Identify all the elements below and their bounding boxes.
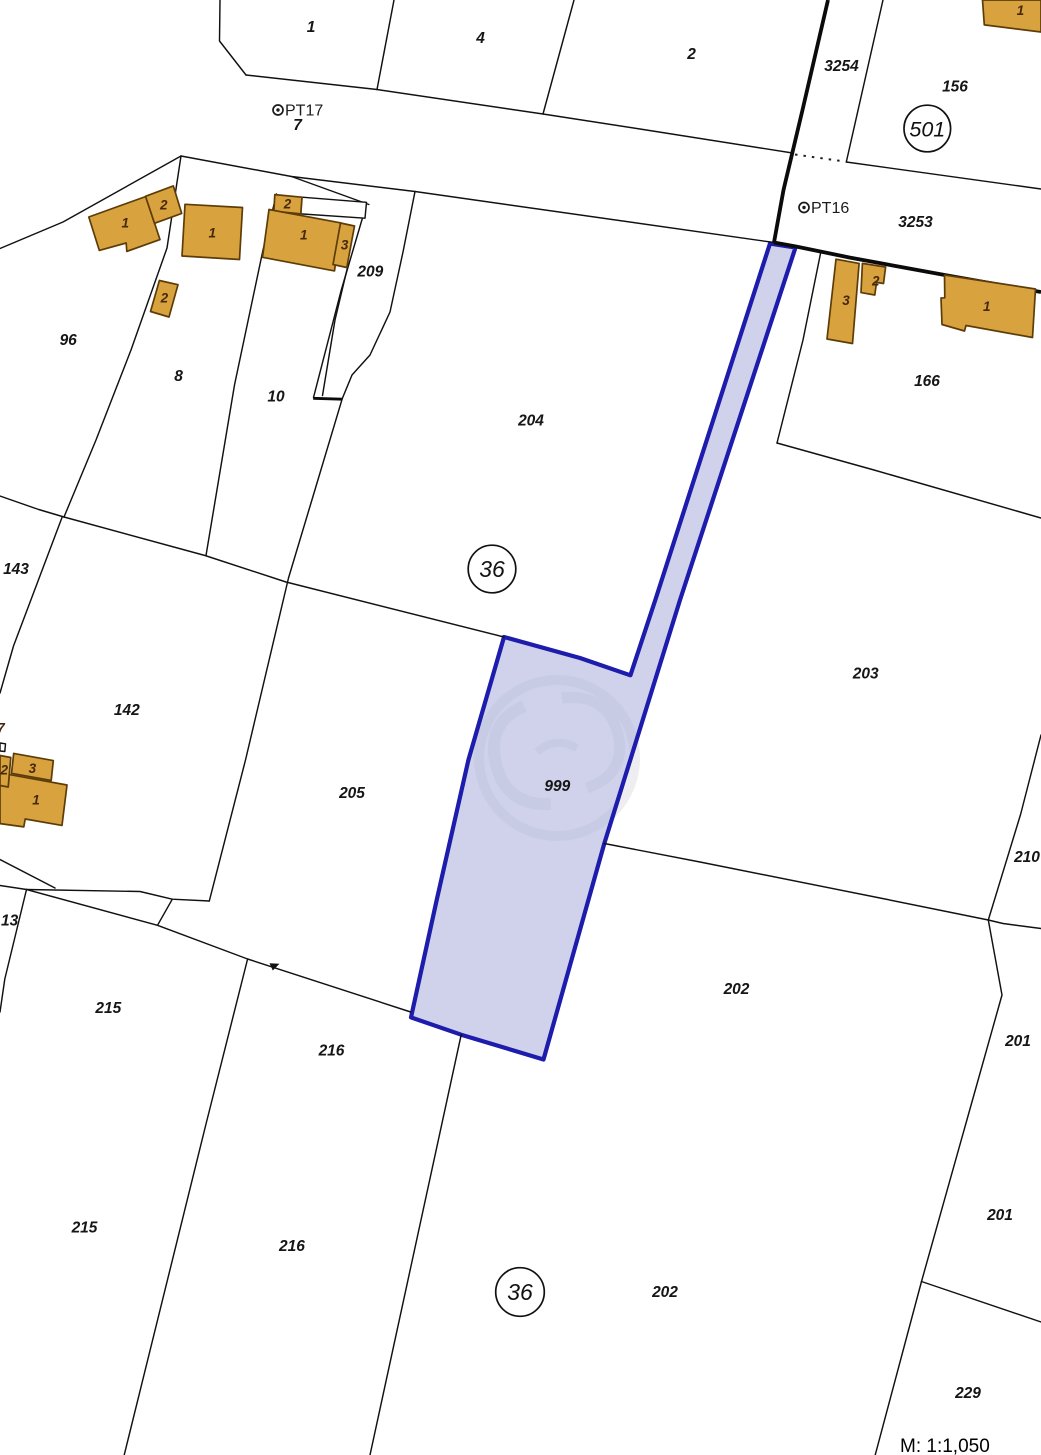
svg-text:4: 4 <box>475 30 485 47</box>
svg-text:201: 201 <box>1004 1033 1031 1050</box>
svg-text:156: 156 <box>942 79 968 96</box>
svg-text:2: 2 <box>283 197 292 212</box>
svg-text:202: 202 <box>723 981 750 998</box>
svg-text:2: 2 <box>0 762 9 777</box>
svg-text:PT17: PT17 <box>285 103 323 120</box>
svg-text:2: 2 <box>686 46 696 63</box>
svg-text:202: 202 <box>651 1284 678 1301</box>
svg-text:36: 36 <box>479 556 505 582</box>
svg-text:209: 209 <box>356 264 383 281</box>
svg-text:216: 216 <box>278 1238 305 1255</box>
svg-text:M: 1:1,050: M: 1:1,050 <box>900 1436 990 1455</box>
svg-text:166: 166 <box>914 373 940 390</box>
svg-text:142: 142 <box>114 702 140 719</box>
svg-text:PT16: PT16 <box>811 200 849 217</box>
svg-text:1: 1 <box>208 225 216 240</box>
svg-text:1: 1 <box>983 299 991 314</box>
svg-text:501: 501 <box>909 118 945 142</box>
svg-text:1: 1 <box>1017 3 1025 18</box>
svg-text:3: 3 <box>341 237 349 252</box>
svg-text:203: 203 <box>852 666 879 683</box>
svg-text:205: 205 <box>338 785 365 802</box>
svg-text:143: 143 <box>3 561 29 578</box>
svg-text:8: 8 <box>174 368 183 385</box>
svg-text:3: 3 <box>29 761 37 776</box>
svg-text:204: 204 <box>517 413 544 430</box>
svg-text:2: 2 <box>160 291 169 306</box>
svg-text:3254: 3254 <box>824 58 859 75</box>
svg-text:36: 36 <box>507 1279 533 1305</box>
svg-text:3253: 3253 <box>898 214 933 231</box>
svg-text:1: 1 <box>300 228 308 243</box>
svg-text:3: 3 <box>842 293 850 308</box>
svg-text:999: 999 <box>544 778 570 795</box>
svg-text:229: 229 <box>954 1385 981 1402</box>
svg-text:1: 1 <box>307 19 316 36</box>
svg-text:210: 210 <box>1013 849 1040 866</box>
svg-text:96: 96 <box>60 332 78 349</box>
svg-text:1: 1 <box>32 793 40 808</box>
svg-text:1: 1 <box>122 216 130 231</box>
svg-text:215: 215 <box>94 1000 121 1017</box>
svg-text:7: 7 <box>293 117 303 134</box>
svg-text:216: 216 <box>318 1042 345 1059</box>
svg-text:2: 2 <box>871 274 880 289</box>
svg-text:215: 215 <box>71 1219 98 1236</box>
svg-text:201: 201 <box>986 1207 1013 1224</box>
svg-text:2: 2 <box>159 197 168 212</box>
svg-text:10: 10 <box>267 389 285 406</box>
svg-text:13: 13 <box>1 913 19 930</box>
